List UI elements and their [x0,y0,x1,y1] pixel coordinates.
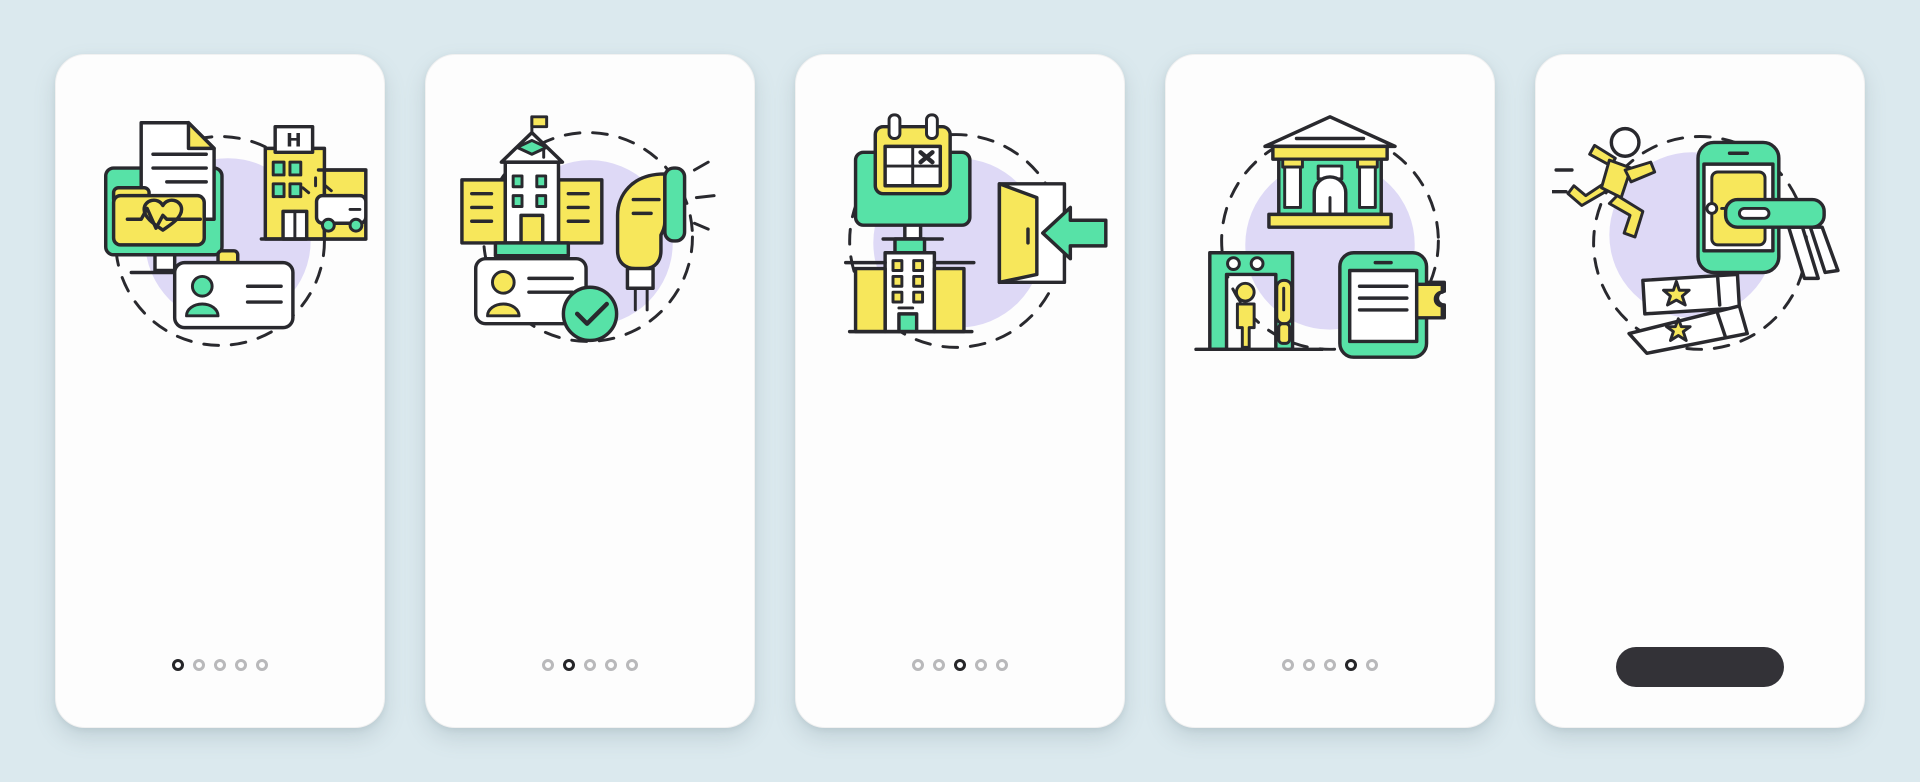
pagination-dot-4[interactable] [975,659,987,671]
screen-2-illustration [426,105,754,371]
pagination-dot-1[interactable] [1282,659,1294,671]
onboarding-screen-3 [795,54,1125,728]
pagination-dot-1-active[interactable] [172,659,184,671]
pagination-dot-4-active[interactable] [1345,659,1357,671]
onboarding-screen-1: H [55,54,385,728]
hospital-sign-letter: H [286,130,302,151]
screen-3-illustration [796,105,1124,371]
pagination-dot-5[interactable] [256,659,268,671]
skip-line-illustration [1552,105,1848,371]
pagination-dot-3[interactable] [1324,659,1336,671]
pagination-dot-2[interactable] [1303,659,1315,671]
pagination-dot-3[interactable] [214,659,226,671]
pagination-dot-4[interactable] [235,659,247,671]
pagination-dot-2-active[interactable] [563,659,575,671]
pagination-dot-3-active[interactable] [954,659,966,671]
check-circle-icon [563,287,616,340]
security-wand-icon [1277,280,1292,343]
museum-building-icon [1265,117,1395,227]
id-badge-icon [175,251,293,328]
pagination-dot-2[interactable] [193,659,205,671]
screen-4-illustration [1166,105,1494,371]
screen-1-pagination [56,659,384,671]
get-started-button[interactable] [1616,647,1784,687]
screen-1-illustration: H [56,105,384,371]
visitor-person-icon [1236,283,1254,347]
student-id-illustration [442,105,738,371]
pagination-dot-3[interactable] [584,659,596,671]
health-folder-heart-icon [114,188,205,245]
pagination-dot-1[interactable] [912,659,924,671]
medical-records-illustration: H [72,105,368,371]
screen-3-pagination [796,659,1124,671]
onboarding-screen-5 [1535,54,1865,728]
onboarding-screen-4 [1165,54,1495,728]
barcode-scanner-icon [618,162,715,310]
onboarding-screens-set: H [0,0,1920,782]
pagination-dot-1[interactable] [542,659,554,671]
pagination-dot-5[interactable] [1366,659,1378,671]
screen-2-pagination [426,659,754,671]
pagination-dot-2[interactable] [933,659,945,671]
onboarding-screen-2 [425,54,755,728]
pagination-dot-5[interactable] [626,659,638,671]
pagination-dot-4[interactable] [605,659,617,671]
screen-5-illustration [1536,105,1864,371]
museum-security-illustration [1182,105,1478,371]
smartphone-ticket-icon [1340,253,1444,357]
school-building-icon [462,117,602,256]
flag-icon [532,117,547,127]
pagination-dot-5[interactable] [996,659,1008,671]
cancellation-illustration [812,105,1108,371]
screen-4-pagination [1166,659,1494,671]
